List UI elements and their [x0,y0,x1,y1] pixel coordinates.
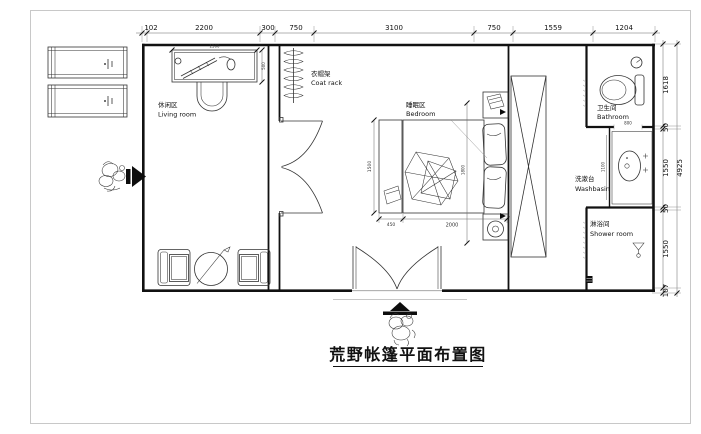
nightstand-top [483,92,508,118]
living-room-label-en: Living room [158,111,196,119]
dim-desk-width: 1500 [209,44,220,49]
dim-top-1204: 1204 [615,24,633,32]
living-room-label-zh: 休闲区 [158,100,178,109]
lounger-bottom [48,85,127,117]
armchair-right [238,250,270,286]
dim-right-107: 107 [662,284,670,297]
entrance-arrow-icon [126,169,131,184]
shower-label-en: Shower room [590,230,633,238]
dim-top-3100: 3100 [385,24,403,32]
coat-rack-label-zh: 衣帽架 [311,69,331,78]
dimension-chain-top: 102 2200 300 750 3100 750 1559 1204 [136,24,660,42]
dim-bench-depth: 450 [387,222,396,228]
dim-right-1550a: 1550 [662,159,670,177]
lounger-top [48,47,127,78]
round-table [195,247,231,286]
dim-basin-opening: 800 [624,121,632,126]
dim-bed-length: 2000 [446,223,459,229]
basin-counter [612,132,652,205]
bathroom: 800 卫生间 Bathroom [583,57,644,126]
bedroom-label-zh: 睡眠区 [406,101,426,109]
washbasin-area: 1100 洗漱台 Washbasin [575,132,652,205]
nightstand-bottom [483,213,508,240]
wardrobe [511,76,546,257]
outdoor-loungers [48,47,127,117]
floor-drain-icon [586,276,593,283]
dim-bed-width: 1500 [367,161,373,173]
bedroom: 睡眠区 Bedroom [353,76,546,289]
entrance-left [99,162,146,191]
dim-bed-zone: 1800 [461,164,466,175]
dimension-chain-right: 1618 50 1550 50 1550 107 4925 [652,40,684,297]
quilt [405,152,458,205]
mouse-icon [227,59,235,70]
entry-zone: 衣帽架 Coat rack [280,48,343,216]
dim-top-1559: 1559 [544,24,562,32]
bathroom-label-zh: 卫生间 [597,103,617,112]
bedroom-label-en: Bedroom [406,110,435,118]
bed-dimensions: 450 2000 1500 1800 [367,101,510,246]
living-room: 1500 500 休闲区 Living room [158,44,270,286]
washbasin-label-zh: 洗漱台 [575,174,595,183]
dim-right-1618: 1618 [662,76,670,94]
leader-line [451,120,487,158]
basin-icon [619,151,641,181]
dim-right-total: 4925 [676,159,684,177]
toilet-icon [600,75,644,105]
dim-top-750a: 750 [289,24,302,32]
coat-rack-label-en: Coat rack [311,79,342,87]
shower-room: 淋浴间 Shower room [583,219,644,283]
drawing-caption: 荒野帐篷平面布置图 [328,345,487,364]
floor-plan-drawing: 102 2200 300 750 3100 750 1559 1204 1618… [0,0,701,434]
bed-bench [379,120,402,213]
entrance-arrow-icon [390,302,410,311]
dim-top-300: 300 [261,24,274,32]
armchair-left [158,250,190,286]
coat-rack-icon [284,48,303,103]
dim-top-102: 102 [144,24,157,32]
washbasin-label-en: Washbasin [575,185,610,193]
desk-chair [197,82,227,111]
book-on-bench [384,186,401,204]
figure-sketch [389,314,415,347]
dim-right-50b: 50 [662,204,670,213]
dim-basin-counter: 1100 [601,161,606,172]
figure-sketch [99,162,125,191]
dim-top-2200: 2200 [195,24,213,32]
shower-head-icon [633,243,644,257]
entrance-double-door [353,246,441,289]
dim-right-50a: 50 [662,123,670,132]
floor-plan-canvas: 102 2200 300 750 3100 750 1559 1204 1618… [0,0,701,434]
entrance-bottom [383,302,417,346]
dim-right-1550b: 1550 [662,240,670,258]
shower-label-zh: 淋浴间 [590,219,610,228]
curtain-double-door [280,118,323,217]
dim-top-750b: 750 [487,24,500,32]
dim-desk-depth: 500 [261,62,266,70]
desk-lamp-icon [175,58,181,64]
tap-icon [643,154,648,173]
pillows [482,123,506,208]
bathroom-label-en: Bathroom [597,113,629,121]
